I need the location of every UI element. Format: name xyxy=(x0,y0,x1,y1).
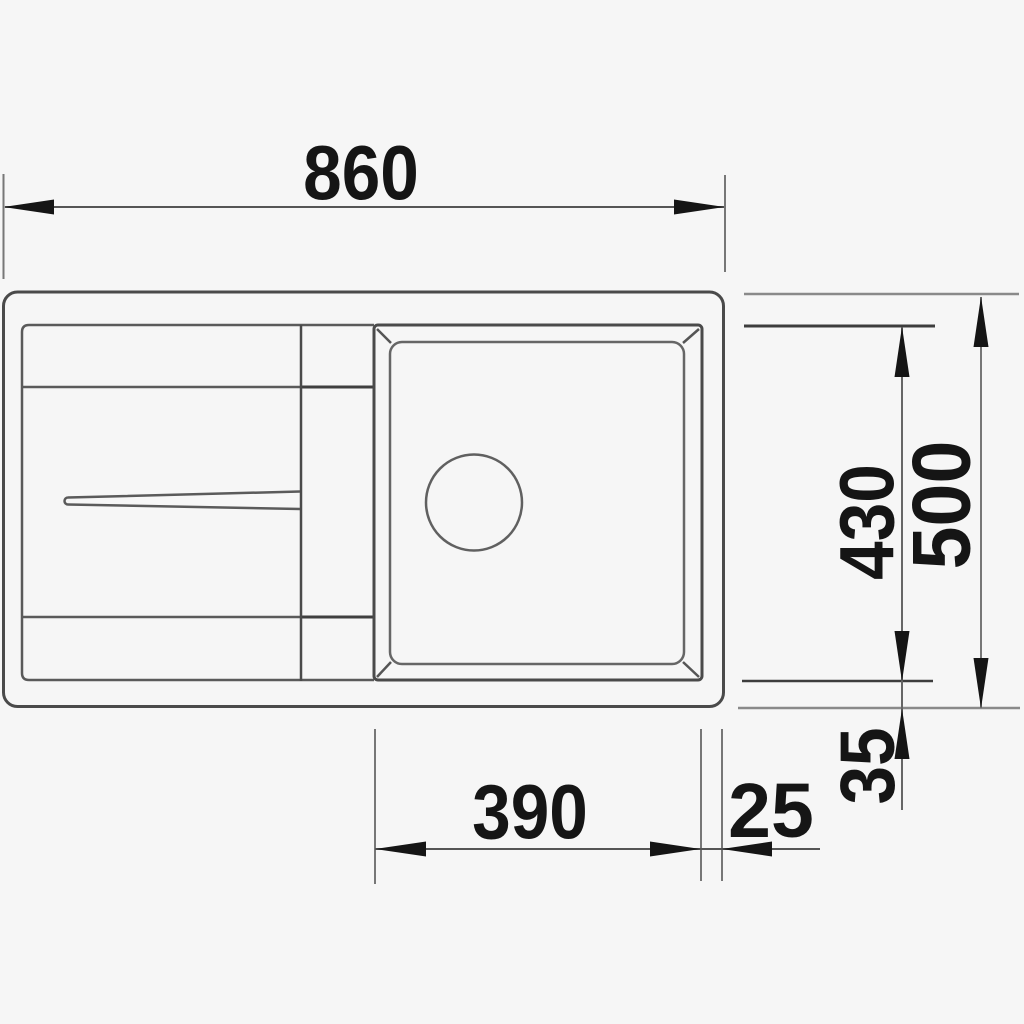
svg-text:25: 25 xyxy=(728,768,814,854)
svg-text:500: 500 xyxy=(894,441,987,570)
svg-text:390: 390 xyxy=(472,769,588,855)
svg-text:860: 860 xyxy=(303,130,419,216)
svg-text:35: 35 xyxy=(825,727,911,804)
